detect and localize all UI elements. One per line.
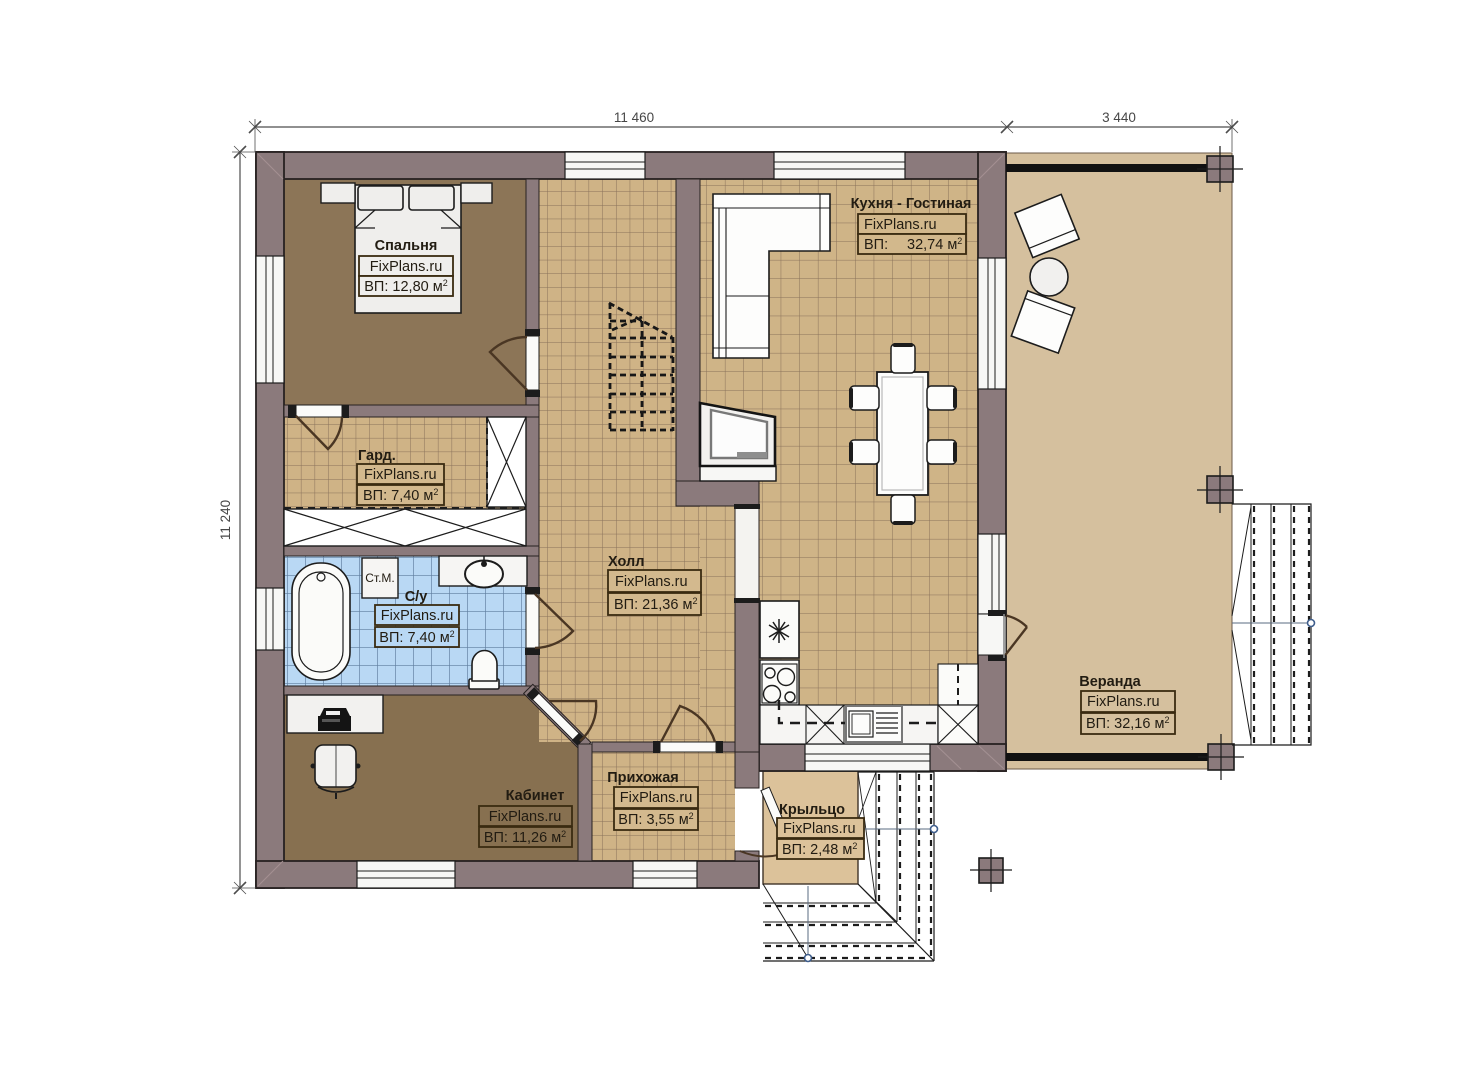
svg-text:FixPlans.ru: FixPlans.ru	[864, 217, 937, 233]
svg-text:FixPlans.ru: FixPlans.ru	[364, 467, 437, 483]
svg-text:11 240: 11 240	[218, 500, 233, 540]
svg-text:11 460: 11 460	[614, 110, 654, 125]
svg-text:С/у: С/у	[405, 589, 428, 605]
svg-text:Прихожая: Прихожая	[607, 770, 679, 786]
svg-text:ВП: 12,80 м2: ВП: 12,80 м2	[364, 278, 447, 295]
svg-text:Кухня - Гостиная: Кухня - Гостиная	[851, 196, 972, 212]
svg-text:ВП: 32,16 м2: ВП: 32,16 м2	[1086, 715, 1169, 732]
svg-text:FixPlans.ru: FixPlans.ru	[370, 259, 443, 275]
svg-text:FixPlans.ru: FixPlans.ru	[783, 821, 856, 837]
svg-text:FixPlans.ru: FixPlans.ru	[489, 809, 562, 825]
svg-text:Спальня: Спальня	[375, 238, 438, 254]
svg-text:Крыльцо: Крыльцо	[779, 802, 845, 818]
svg-text:ВП: 7,40 м2: ВП: 7,40 м2	[363, 487, 438, 504]
svg-text:Кабинет: Кабинет	[506, 788, 565, 804]
svg-text:FixPlans.ru: FixPlans.ru	[381, 608, 454, 624]
svg-text:FixPlans.ru: FixPlans.ru	[620, 790, 693, 806]
svg-text:Гард.: Гард.	[358, 448, 396, 464]
svg-text:Ст.М.: Ст.М.	[365, 571, 395, 585]
svg-text:ВП:: ВП:	[864, 237, 888, 253]
svg-text:FixPlans.ru: FixPlans.ru	[1087, 694, 1160, 710]
svg-text:ВП: 21,36 м2: ВП: 21,36 м2	[614, 596, 697, 613]
svg-text:Веранда: Веранда	[1079, 674, 1141, 690]
svg-text:32,74 м2: 32,74 м2	[907, 236, 962, 253]
svg-text:ВП: 3,55 м2: ВП: 3,55 м2	[618, 811, 693, 828]
svg-text:ВП: 11,26 м2: ВП: 11,26 м2	[484, 829, 566, 846]
svg-text:ВП: 7,40 м2: ВП: 7,40 м2	[379, 629, 454, 646]
svg-text:Холл: Холл	[608, 554, 644, 570]
svg-text:FixPlans.ru: FixPlans.ru	[615, 574, 688, 590]
svg-text:3 440: 3 440	[1102, 110, 1136, 125]
svg-text:ВП: 2,48 м2: ВП: 2,48 м2	[782, 841, 857, 858]
